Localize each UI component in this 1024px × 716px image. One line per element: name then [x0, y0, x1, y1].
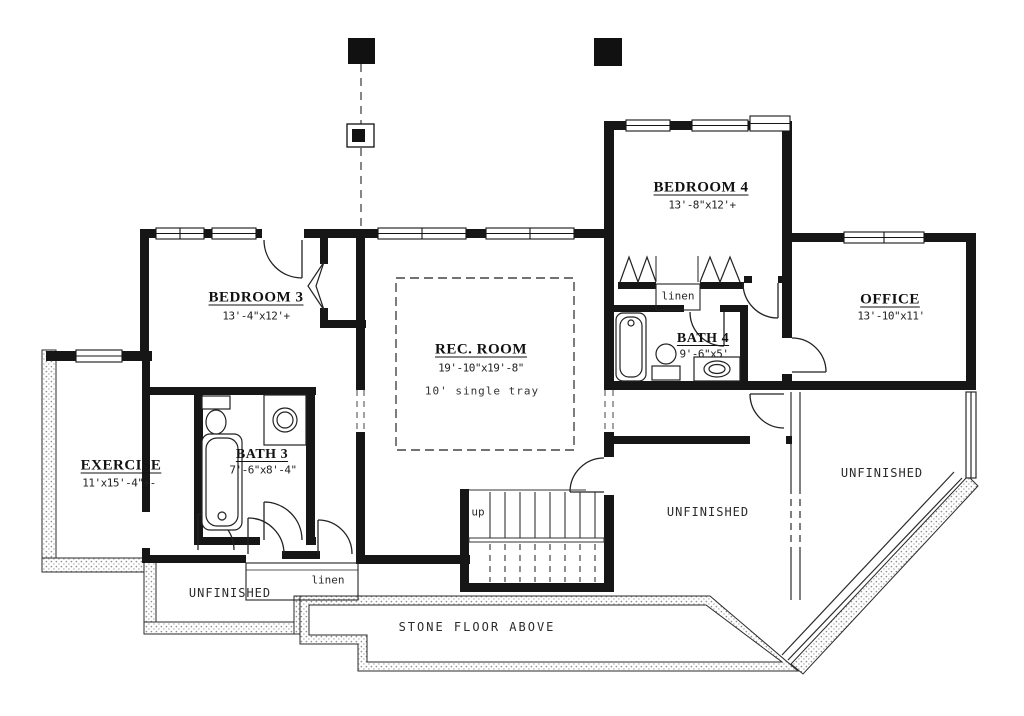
stairs	[469, 490, 604, 582]
door-hall-left	[248, 518, 284, 554]
vanity-sink-icon	[694, 357, 740, 381]
door-bedroom4	[743, 283, 778, 318]
room-dims-bath3: 7'-6"x8'-4"	[229, 464, 296, 477]
room-dims-recroom: 19'-10"x19'-8"	[438, 362, 524, 375]
room-dims-office: 13'-10"x11'	[857, 310, 924, 323]
room-dims-bedroom3: 13'-4"x12'+	[222, 310, 289, 323]
area-label-stone-floor: STONE FLOOR ABOVE	[399, 620, 556, 634]
room-label-recroom: REC. ROOM	[435, 342, 527, 359]
room-label-bath4: BATH 4	[677, 331, 729, 347]
area-label-unfinished-center: UNFINISHED	[667, 505, 749, 519]
room-label-bath3: BATH 3	[236, 447, 288, 463]
toilet-icon	[652, 344, 680, 380]
area-label-unfinished-right: UNFINISHED	[841, 466, 923, 480]
bifold-bed4-closet-right	[700, 257, 740, 282]
room-note-recroom: 10' single tray	[425, 385, 539, 398]
bifold-bed4-closet-left	[620, 257, 656, 282]
room-label-office: OFFICE	[860, 292, 920, 309]
room-label-bedroom3: BEDROOM 3	[209, 290, 304, 307]
vanity-sink-icon	[264, 395, 306, 445]
floor-plan: BEDROOM 3 13'-4"x12'+ REC. ROOM 19'-10"x…	[0, 0, 1024, 716]
foundation-thin-lines	[782, 392, 976, 660]
toilet-icon	[202, 396, 230, 434]
room-dims-bath4: 9'-6"x5'	[680, 348, 729, 361]
door-recroom-right	[570, 458, 604, 492]
room-label-bedroom4: BEDROOM 4	[654, 180, 749, 197]
label-linen-lower: linen	[311, 574, 344, 587]
door-bedroom3	[264, 240, 302, 278]
label-linen-upper: linen	[661, 290, 694, 303]
area-label-unfinished-lower-left: UNFINISHED	[189, 586, 271, 600]
label-stairs-up: up	[471, 506, 484, 519]
door-corridor	[750, 394, 784, 428]
room-dims-bedroom4: 13'-8"x12'+	[668, 199, 735, 212]
door-bath3	[264, 502, 302, 540]
door-office	[792, 338, 826, 372]
room-dims-exercise: 11'x15'-4"+-	[82, 477, 155, 490]
door-linen-lower	[318, 520, 352, 554]
room-label-exercise: EXERCISE	[81, 458, 162, 475]
support-posts	[347, 38, 622, 229]
bathtub-icon	[616, 313, 646, 381]
